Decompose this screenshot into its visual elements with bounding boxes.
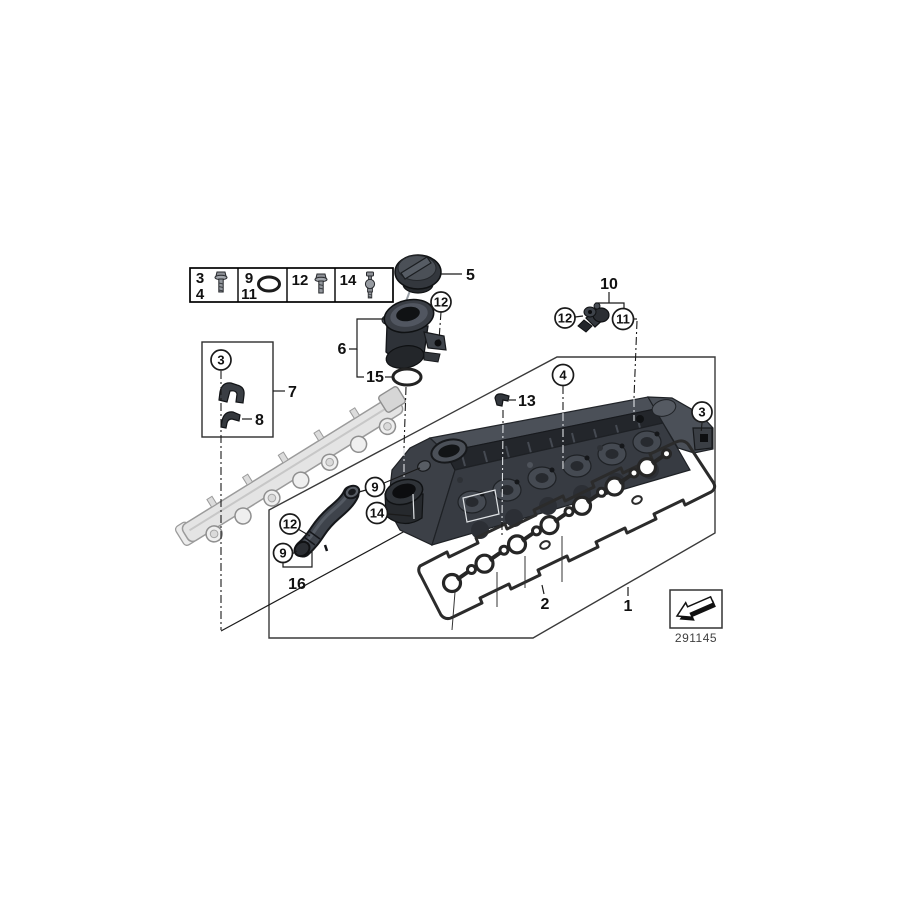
legend-num-11[interactable]: 11 <box>241 286 257 303</box>
clamp-part <box>221 412 240 428</box>
label-sensor-group[interactable]: 10 <box>600 276 618 293</box>
bracket-group-box: 3 7 8 <box>202 342 297 437</box>
callout-circle-camshaft-sensor[interactable]: 11 <box>613 309 634 330</box>
filler-cap-part <box>395 255 441 293</box>
callout-circle-cover-bolt[interactable]: 3 <box>692 402 712 422</box>
parts-diagram-page: 3 4 9 11 12 <box>0 0 900 900</box>
label-clamp[interactable]: 8 <box>255 412 264 429</box>
parts-diagram-canvas: 3 4 9 11 12 <box>0 0 900 900</box>
callout-circle-cover[interactable]: 4 <box>553 365 574 386</box>
o-ring-line <box>404 387 406 448</box>
sensor-mount-line <box>634 321 637 398</box>
label-cover-assembly[interactable]: 1 <box>624 598 633 615</box>
bracket-part <box>219 383 244 403</box>
o-ring-part <box>393 369 421 385</box>
callout-12-neck[interactable]: 12 <box>434 295 448 310</box>
filler-opening <box>383 475 426 523</box>
callout-circle-ball-stud[interactable]: 14 <box>367 503 388 524</box>
label-vent-hose[interactable]: 16 <box>288 576 306 593</box>
callout-circle-hose-screw[interactable]: 12 <box>280 514 300 534</box>
callout-12-hose[interactable]: 12 <box>283 517 297 532</box>
callout-circle-sensor-screw[interactable]: 12 <box>555 308 575 328</box>
callout-12-sensor[interactable]: 12 <box>558 311 572 326</box>
cable-clip-part <box>495 394 509 406</box>
legend-num-9[interactable]: 9 <box>245 270 253 287</box>
diagram-number: 291145 <box>675 631 717 645</box>
callout-3-bracket[interactable]: 3 <box>217 353 224 368</box>
callout-3-cover[interactable]: 3 <box>698 405 705 420</box>
callout-circle-hose-seal-upper[interactable]: 9 <box>366 478 385 497</box>
fastener-legend: 3 4 9 11 12 <box>190 268 393 303</box>
filler-neck-bracket <box>349 319 384 349</box>
callout-circle-neck-screw[interactable]: 12 <box>431 292 451 312</box>
label-gasket-set[interactable]: 2 <box>541 596 550 613</box>
filler-neck-bracket-lower <box>357 349 364 377</box>
legend-num-4[interactable]: 4 <box>196 286 205 303</box>
diagram-reference-box[interactable] <box>670 590 722 628</box>
legend-num-12[interactable]: 12 <box>292 272 309 289</box>
callout-circle-hose-seal-lower[interactable]: 9 <box>274 544 293 563</box>
callout-11-sensor[interactable]: 11 <box>616 312 630 327</box>
legend-num-3[interactable]: 3 <box>196 270 204 287</box>
callout-9-upper[interactable]: 9 <box>371 480 378 495</box>
label-filler-cap[interactable]: 5 <box>466 267 475 284</box>
callout-circle-bracket-screw[interactable]: 3 <box>211 350 231 370</box>
vent-hose-part <box>292 483 362 559</box>
callout-14-stud[interactable]: 14 <box>370 506 385 521</box>
legend-num-14[interactable]: 14 <box>340 272 357 289</box>
label-filler-neck[interactable]: 6 <box>338 341 347 358</box>
label-o-ring[interactable]: 15 <box>366 369 384 386</box>
label-cable-clip[interactable]: 13 <box>518 393 536 410</box>
callout-4-cover[interactable]: 4 <box>559 368 567 383</box>
label-bracket[interactable]: 7 <box>288 384 297 401</box>
camshaft-sensor-part <box>578 303 609 332</box>
callout-9-hose-lower[interactable]: 9 <box>279 546 286 561</box>
